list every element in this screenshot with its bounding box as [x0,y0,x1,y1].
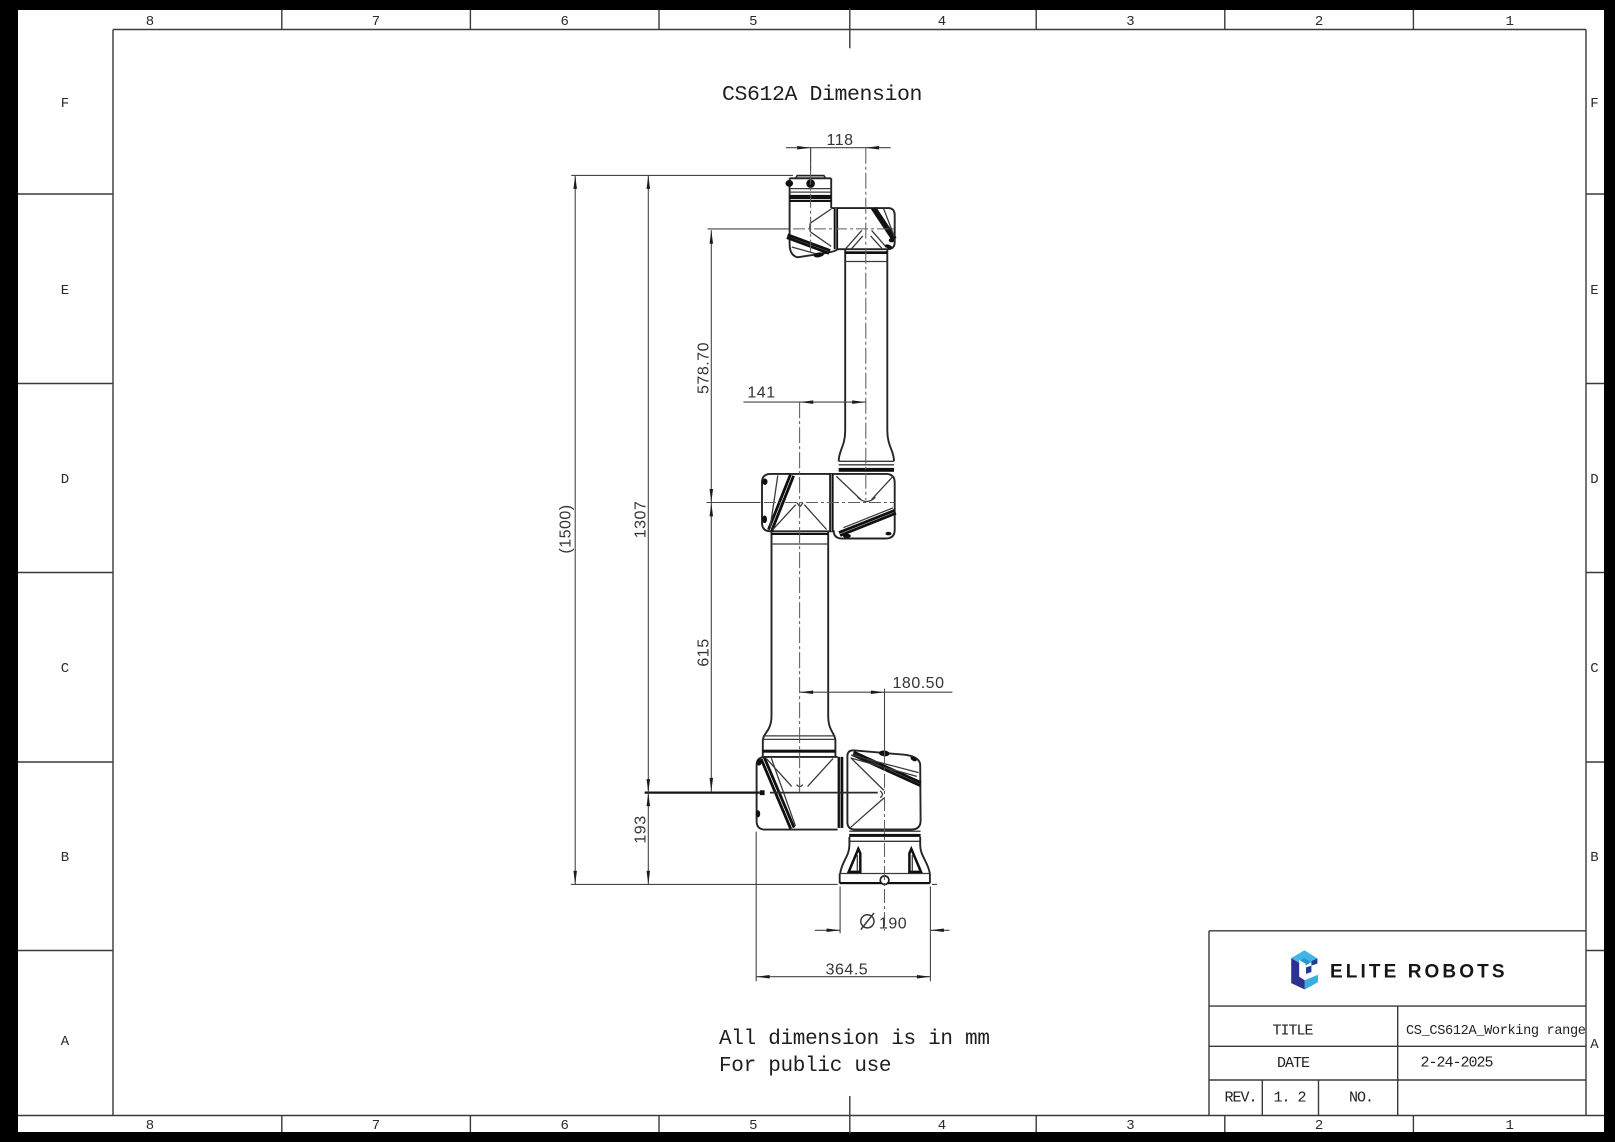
svg-text:364.5: 364.5 [826,962,869,979]
svg-text:180.50: 180.50 [893,675,945,692]
svg-text:8: 8 [146,1118,154,1134]
svg-text:ELITE ROBOTS: ELITE ROBOTS [1330,962,1508,983]
svg-text:C: C [1590,661,1598,677]
svg-text:B: B [1590,850,1598,866]
svg-text:REV.: REV. [1224,1090,1256,1107]
svg-text:3: 3 [1126,1118,1134,1134]
svg-text:E: E [61,283,69,299]
svg-text:1. 2: 1. 2 [1273,1090,1305,1107]
svg-text:(1500): (1500) [558,504,575,553]
svg-text:8: 8 [146,14,154,30]
svg-text:1307: 1307 [633,501,650,539]
svg-text:F: F [61,96,69,112]
svg-text:1: 1 [1505,14,1513,30]
svg-text:141: 141 [747,385,775,402]
svg-text:TITLE: TITLE [1272,1023,1313,1040]
svg-text:2: 2 [1315,14,1323,30]
svg-text:F: F [1590,96,1598,112]
svg-text:7: 7 [372,14,380,30]
svg-text:578.70: 578.70 [695,342,712,394]
svg-text:6: 6 [560,1118,568,1134]
svg-text:CS_CS612A_Working range: CS_CS612A_Working range [1406,1024,1586,1039]
svg-text:DATE: DATE [1277,1055,1310,1072]
svg-text:All dimension is in mm: All dimension is in mm [719,1028,990,1051]
svg-text:CS612A Dimension: CS612A Dimension [722,83,922,107]
svg-text:1: 1 [1505,1118,1513,1134]
svg-text:B: B [61,850,69,866]
svg-text:6: 6 [560,14,568,30]
svg-text:118: 118 [826,132,853,149]
svg-text:A: A [61,1034,70,1050]
svg-text:4: 4 [938,14,946,30]
svg-text:D: D [1590,472,1598,488]
svg-text:5: 5 [749,14,757,30]
svg-text:E: E [1590,283,1598,299]
svg-text:5: 5 [749,1118,757,1134]
svg-text:2-24-2025: 2-24-2025 [1420,1055,1493,1072]
svg-text:4: 4 [938,1118,946,1134]
svg-text:193: 193 [633,815,650,843]
svg-text:7: 7 [372,1118,380,1134]
svg-text:C: C [61,661,69,677]
svg-text:D: D [61,472,69,488]
svg-text:615: 615 [695,638,712,666]
svg-text:190: 190 [879,915,907,932]
svg-text:A: A [1590,1037,1599,1053]
svg-text:NO.: NO. [1349,1090,1373,1107]
svg-text:For public use: For public use [719,1055,891,1078]
svg-text:3: 3 [1126,14,1134,30]
svg-text:2: 2 [1315,1118,1323,1134]
